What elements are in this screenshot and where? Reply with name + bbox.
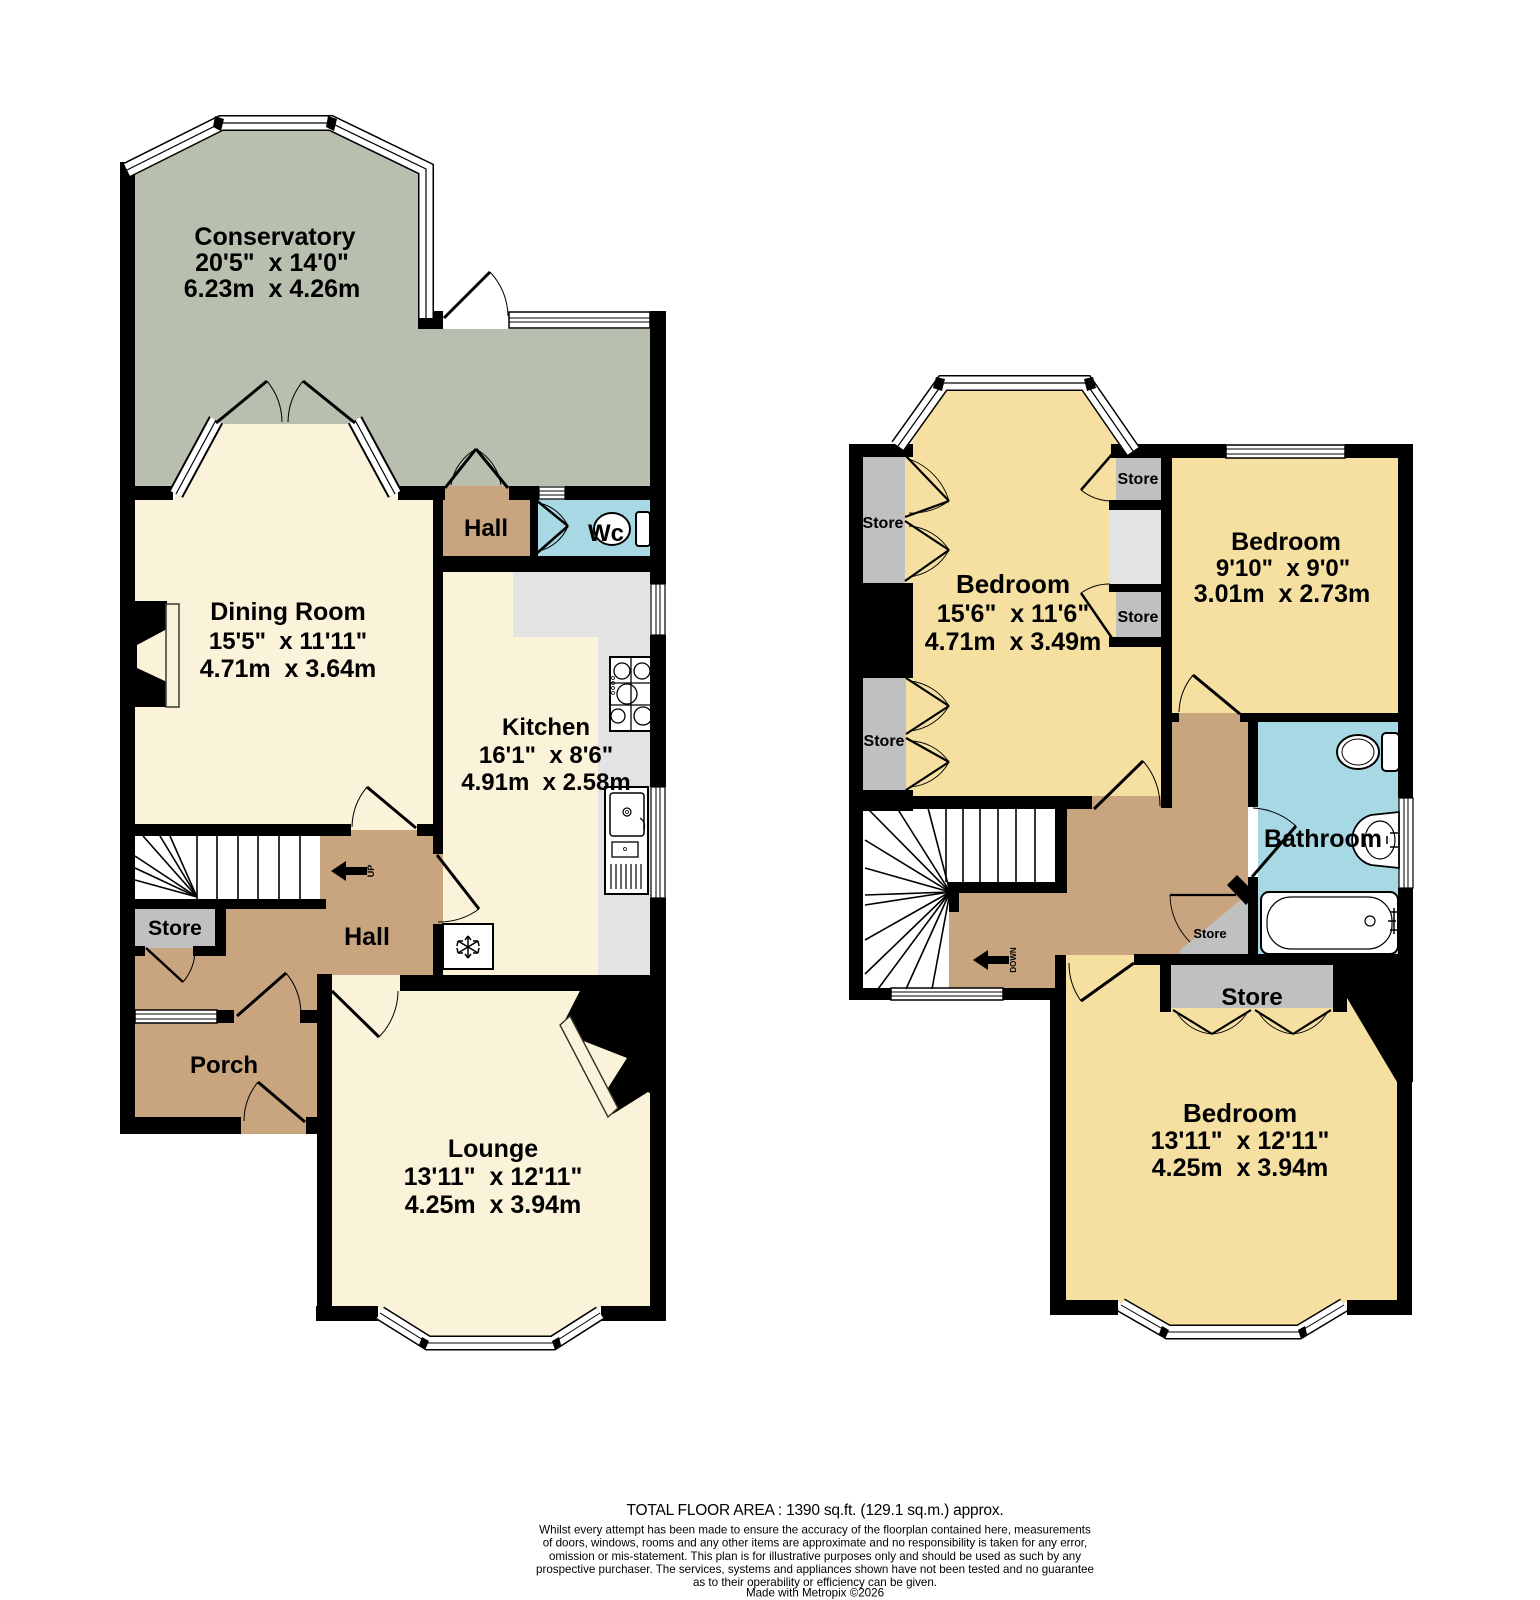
svg-text:4.25m x 3.94m: 4.25m x 3.94m <box>405 1191 582 1219</box>
svg-text:13'11" x 12'11": 13'11" x 12'11" <box>404 1163 583 1191</box>
svg-text:Store: Store <box>864 733 905 750</box>
svg-text:20'5" x 14'0": 20'5" x 14'0" <box>195 249 349 277</box>
svg-text:4.71m x 3.64m: 4.71m x 3.64m <box>200 655 377 683</box>
svg-text:Made with Metropix ©2026: Made with Metropix ©2026 <box>746 1587 884 1600</box>
svg-text:16'1" x 8'6": 16'1" x 8'6" <box>479 742 613 769</box>
svg-text:Bathroom: Bathroom <box>1264 825 1382 853</box>
svg-text:15'6" x 11'6": 15'6" x 11'6" <box>937 600 1089 628</box>
svg-text:13'11" x 12'11": 13'11" x 12'11" <box>1151 1127 1330 1155</box>
svg-text:Store: Store <box>1221 984 1282 1011</box>
svg-text:Wc: Wc <box>588 520 624 547</box>
svg-text:Hall: Hall <box>464 515 508 542</box>
svg-text:4.91m x 2.58m: 4.91m x 2.58m <box>461 769 630 796</box>
svg-text:Store: Store <box>1118 471 1159 488</box>
svg-text:4.71m x 3.49m: 4.71m x 3.49m <box>925 628 1102 656</box>
svg-text:Whilst every attempt has been: Whilst every attempt has been made to en… <box>539 1524 1091 1537</box>
svg-text:omission or mis-statement. Thi: omission or mis-statement. This plan is … <box>549 1550 1081 1563</box>
svg-text:Hall: Hall <box>344 923 390 951</box>
svg-text:Store: Store <box>1118 609 1159 626</box>
svg-text:Conservatory: Conservatory <box>194 223 355 251</box>
svg-text:3.01m x 2.73m: 3.01m x 2.73m <box>1194 580 1371 608</box>
svg-text:Porch: Porch <box>190 1052 258 1079</box>
svg-text:Bedroom: Bedroom <box>1231 528 1341 556</box>
svg-text:Lounge: Lounge <box>448 1135 538 1163</box>
svg-text:DOWN: DOWN <box>1009 947 1018 973</box>
svg-text:Store: Store <box>863 515 904 532</box>
svg-text:15'5" x 11'11": 15'5" x 11'11" <box>209 628 367 655</box>
svg-text:UP: UP <box>366 865 376 878</box>
svg-text:Bedroom: Bedroom <box>956 569 1070 599</box>
svg-text:Store: Store <box>1193 926 1226 941</box>
svg-text:Bedroom: Bedroom <box>1183 1098 1297 1128</box>
svg-text:6.23m x 4.26m: 6.23m x 4.26m <box>184 275 361 303</box>
svg-text:TOTAL FLOOR AREA : 1390 sq.ft.: TOTAL FLOOR AREA : 1390 sq.ft. (129.1 sq… <box>627 1502 1004 1519</box>
svg-text:prospective purchaser. The ser: prospective purchaser. The services, sys… <box>536 1563 1094 1576</box>
svg-text:Store: Store <box>148 917 202 940</box>
svg-text:9'10" x 9'0": 9'10" x 9'0" <box>1216 555 1350 582</box>
svg-text:Kitchen: Kitchen <box>502 714 590 741</box>
svg-text:Dining Room: Dining Room <box>210 598 366 626</box>
svg-text:of doors, windows, rooms and a: of doors, windows, rooms and any other i… <box>543 1537 1088 1550</box>
svg-text:4.25m x 3.94m: 4.25m x 3.94m <box>1152 1154 1329 1182</box>
